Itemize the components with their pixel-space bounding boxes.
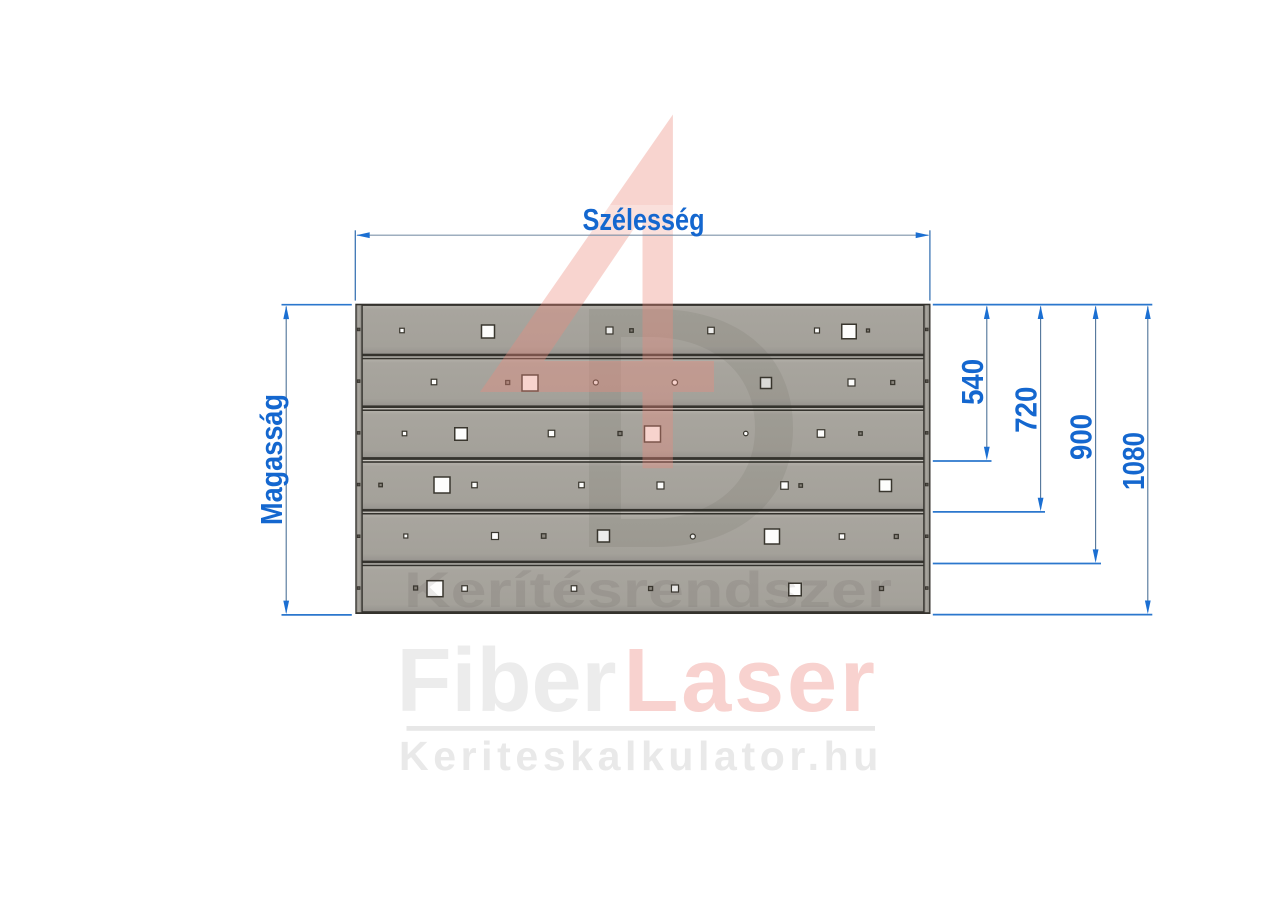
svg-text:Kerítésrendszer: Kerítésrendszer	[404, 562, 892, 618]
svg-text:1080: 1080	[1117, 432, 1151, 490]
svg-text:Fiber: Fiber	[397, 631, 617, 731]
svg-text:720: 720	[1010, 387, 1044, 433]
svg-text:540: 540	[956, 359, 990, 405]
svg-text:Laser: Laser	[624, 631, 878, 731]
svg-text:Szélesség: Szélesség	[583, 203, 705, 237]
svg-text:Magasság: Magasság	[255, 394, 289, 525]
svg-text:Keriteskalkulator.hu: Keriteskalkulator.hu	[399, 733, 883, 779]
svg-text:900: 900	[1065, 414, 1099, 460]
